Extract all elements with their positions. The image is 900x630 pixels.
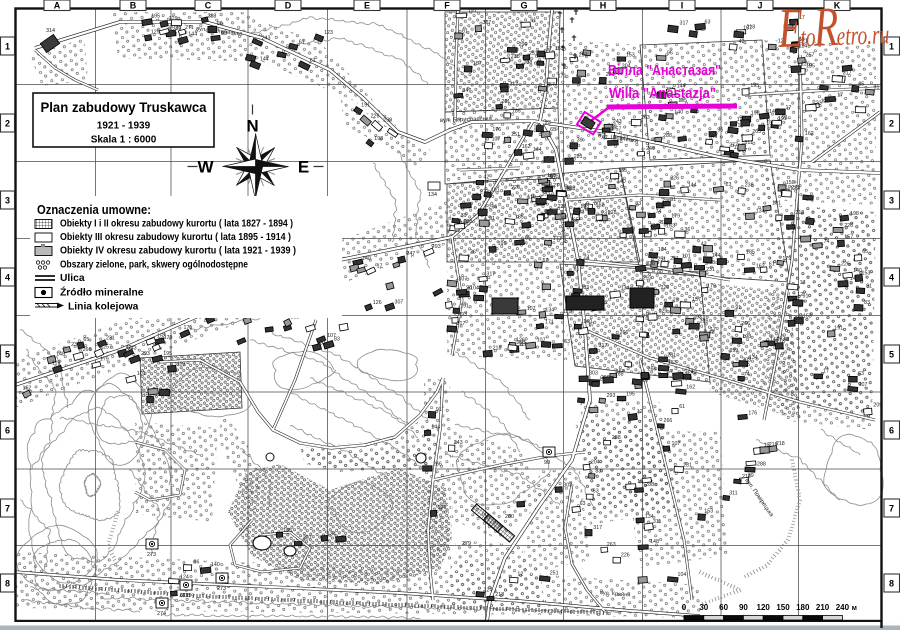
- svg-text:39: 39: [577, 137, 583, 143]
- svg-text:61: 61: [462, 29, 468, 35]
- svg-text:317: 317: [599, 343, 608, 349]
- svg-text:Ulica: Ulica: [60, 273, 85, 284]
- svg-text:83: 83: [595, 469, 601, 475]
- svg-text:198: 198: [374, 136, 383, 142]
- svg-text:134: 134: [621, 286, 630, 292]
- svg-text:96: 96: [717, 127, 723, 133]
- svg-text:129: 129: [169, 16, 178, 22]
- svg-text:198: 198: [742, 334, 751, 340]
- svg-text:307: 307: [303, 536, 312, 542]
- svg-text:266: 266: [626, 227, 635, 233]
- svg-text:61: 61: [574, 267, 580, 273]
- svg-text:Plan zabudowy Truskawca: Plan zabudowy Truskawca: [41, 100, 207, 115]
- svg-text:226: 226: [621, 552, 630, 558]
- svg-text:273: 273: [217, 586, 226, 592]
- svg-text:107: 107: [672, 441, 681, 447]
- svg-text:148: 148: [56, 351, 65, 357]
- svg-text:231: 231: [706, 267, 715, 273]
- svg-text:4: 4: [5, 273, 10, 283]
- svg-text:281: 281: [667, 353, 676, 359]
- svg-text:3: 3: [889, 196, 894, 206]
- svg-text:293: 293: [432, 244, 441, 250]
- svg-text:226: 226: [661, 285, 670, 291]
- svg-text:238: 238: [511, 54, 520, 60]
- svg-text:279: 279: [462, 541, 471, 547]
- svg-text:317: 317: [843, 70, 852, 76]
- svg-text:293: 293: [607, 393, 616, 399]
- svg-text:91: 91: [735, 305, 741, 311]
- svg-text:129: 129: [790, 186, 799, 192]
- svg-text:195: 195: [151, 14, 160, 20]
- svg-text:23: 23: [545, 120, 551, 126]
- svg-text:129: 129: [151, 29, 160, 35]
- svg-text:266: 266: [648, 367, 657, 373]
- svg-text:83: 83: [864, 300, 870, 306]
- svg-text:119: 119: [52, 361, 60, 367]
- svg-text:266: 266: [662, 197, 671, 203]
- svg-text:Źródło mineralne: Źródło mineralne: [60, 286, 144, 299]
- svg-text:293: 293: [169, 26, 178, 32]
- svg-text:277: 277: [729, 143, 738, 149]
- svg-text:61: 61: [310, 58, 316, 64]
- svg-text:83: 83: [635, 201, 641, 207]
- svg-text:126: 126: [700, 319, 709, 325]
- svg-text:17: 17: [786, 105, 792, 111]
- svg-text:288: 288: [208, 14, 217, 20]
- svg-text:311: 311: [653, 519, 661, 525]
- svg-text:226: 226: [511, 185, 520, 191]
- svg-text:299: 299: [438, 505, 447, 511]
- svg-text:Obszary zielone, park, skwery: Obszary zielone, park, skwery ogólnodost…: [60, 260, 248, 271]
- svg-text:307: 307: [395, 300, 404, 306]
- svg-text:179: 179: [671, 213, 680, 219]
- svg-text:212: 212: [509, 82, 518, 88]
- svg-text:238: 238: [71, 342, 80, 348]
- svg-text:240: 240: [836, 603, 850, 612]
- svg-text:104: 104: [678, 572, 687, 578]
- svg-text:63: 63: [580, 501, 586, 507]
- svg-text:107: 107: [154, 339, 163, 345]
- svg-text:Obiekty I i II okresu zabudowy: Obiekty I i II okresu zabudowy kurortu (…: [60, 219, 293, 230]
- svg-text:123: 123: [324, 30, 333, 36]
- svg-text:176: 176: [748, 411, 757, 417]
- svg-text:J: J: [757, 1, 762, 11]
- svg-text:63: 63: [705, 19, 711, 25]
- svg-text:36: 36: [684, 227, 690, 233]
- svg-text:293: 293: [141, 351, 150, 357]
- svg-text:218: 218: [769, 442, 778, 448]
- svg-text:83: 83: [583, 285, 589, 291]
- svg-text:191: 191: [361, 102, 370, 108]
- svg-text:12: 12: [517, 572, 523, 578]
- svg-text:134: 134: [327, 532, 336, 538]
- svg-text:153: 153: [862, 271, 871, 277]
- svg-text:157: 157: [692, 297, 701, 303]
- svg-text:195: 195: [163, 351, 172, 357]
- svg-text:107: 107: [527, 306, 536, 312]
- svg-text:Willa "Anastazja": Willa "Anastazja": [609, 85, 716, 102]
- svg-text:231: 231: [106, 336, 115, 342]
- svg-text:299: 299: [729, 348, 738, 354]
- svg-text:107: 107: [492, 137, 501, 143]
- svg-text:30: 30: [699, 603, 708, 612]
- svg-text:74: 74: [744, 372, 750, 378]
- svg-text:157: 157: [844, 235, 853, 241]
- svg-text:226: 226: [670, 175, 679, 181]
- svg-text:311: 311: [744, 140, 752, 146]
- svg-text:266: 266: [664, 418, 673, 424]
- svg-text:195: 195: [626, 391, 635, 397]
- svg-text:299: 299: [383, 118, 392, 124]
- svg-text:153: 153: [668, 360, 677, 366]
- svg-text:179: 179: [782, 256, 791, 262]
- svg-text:23: 23: [726, 182, 732, 188]
- svg-text:90: 90: [544, 460, 550, 466]
- svg-text:96: 96: [544, 210, 550, 216]
- svg-text:124: 124: [484, 587, 493, 593]
- svg-text:96: 96: [217, 21, 223, 27]
- svg-text:91: 91: [489, 216, 495, 222]
- svg-text:273: 273: [147, 552, 156, 558]
- svg-text:H: H: [600, 1, 607, 11]
- svg-text:107: 107: [859, 382, 868, 388]
- svg-text:61: 61: [679, 404, 685, 410]
- svg-text:162: 162: [805, 131, 814, 137]
- svg-text:198: 198: [850, 211, 859, 217]
- svg-text:168: 168: [615, 371, 624, 377]
- svg-text:Obiekty IV okresu zabudowy kur: Obiekty IV okresu zabudowy kurortu ( lat…: [60, 246, 296, 257]
- svg-text:17: 17: [377, 264, 383, 270]
- svg-text:204: 204: [591, 459, 600, 465]
- svg-text:A: A: [54, 1, 61, 11]
- svg-text:218: 218: [495, 592, 504, 598]
- svg-text:157: 157: [473, 61, 482, 67]
- svg-text:42: 42: [739, 39, 745, 45]
- svg-text:м: м: [852, 605, 857, 612]
- svg-text:134: 134: [545, 308, 554, 314]
- svg-text:247: 247: [462, 88, 471, 94]
- svg-text:8: 8: [5, 579, 10, 589]
- svg-text:251: 251: [529, 51, 538, 57]
- svg-text:63: 63: [593, 489, 599, 495]
- svg-text:307: 307: [458, 276, 467, 282]
- svg-text:101: 101: [682, 254, 691, 260]
- svg-text:96: 96: [566, 186, 572, 192]
- svg-text:Вілла "Анастазая": Вілла "Анастазая": [608, 62, 721, 79]
- svg-text:162: 162: [686, 384, 695, 390]
- svg-text:2: 2: [889, 119, 894, 129]
- svg-text:277: 277: [480, 190, 489, 196]
- svg-text:288: 288: [663, 133, 672, 139]
- svg-text:171: 171: [184, 325, 193, 331]
- svg-text:277: 277: [553, 183, 562, 189]
- svg-text:238: 238: [646, 261, 655, 267]
- svg-text:0: 0: [682, 603, 687, 612]
- svg-text:E: E: [298, 158, 309, 177]
- svg-text:263: 263: [607, 542, 616, 548]
- svg-text:61: 61: [769, 261, 775, 267]
- svg-text:144: 144: [431, 425, 440, 431]
- svg-text:Skala 1 : 6000: Skala 1 : 6000: [91, 135, 157, 146]
- svg-text:288: 288: [757, 462, 766, 468]
- svg-text:243: 243: [454, 440, 463, 446]
- svg-text:266: 266: [433, 462, 442, 468]
- svg-text:307: 307: [482, 20, 491, 26]
- svg-text:144: 144: [712, 253, 721, 259]
- svg-text:212: 212: [795, 210, 804, 216]
- svg-text:126: 126: [801, 61, 810, 67]
- svg-text:288: 288: [464, 219, 473, 225]
- svg-text:57: 57: [616, 127, 622, 133]
- svg-text:162: 162: [23, 385, 32, 391]
- svg-text:B: B: [130, 1, 137, 11]
- svg-text:153: 153: [666, 224, 675, 230]
- svg-text:65: 65: [83, 337, 89, 343]
- svg-text:226: 226: [844, 223, 853, 229]
- svg-text:91: 91: [866, 283, 872, 289]
- svg-text:148: 148: [650, 539, 659, 545]
- svg-text:96: 96: [194, 559, 200, 565]
- svg-text:107: 107: [743, 26, 752, 32]
- svg-text:83: 83: [334, 336, 340, 342]
- svg-text:231: 231: [601, 211, 610, 217]
- svg-text:317: 317: [680, 21, 689, 27]
- svg-text:185: 185: [547, 173, 556, 179]
- svg-text:6: 6: [5, 426, 10, 436]
- svg-text:57: 57: [546, 47, 552, 53]
- svg-text:179: 179: [707, 284, 716, 290]
- svg-text:185: 185: [618, 168, 627, 174]
- svg-text:124: 124: [685, 369, 694, 375]
- svg-text:171: 171: [558, 73, 567, 79]
- svg-text:176: 176: [492, 127, 501, 133]
- svg-text:171: 171: [545, 320, 554, 326]
- svg-text:63: 63: [564, 339, 570, 345]
- svg-text:74: 74: [656, 209, 662, 215]
- svg-text:140: 140: [583, 319, 592, 325]
- svg-text:317: 317: [457, 321, 466, 327]
- svg-text:G: G: [520, 1, 527, 11]
- svg-text:42: 42: [483, 175, 489, 181]
- svg-text:171: 171: [553, 236, 562, 242]
- svg-text:65: 65: [858, 82, 864, 88]
- svg-text:74: 74: [397, 257, 403, 263]
- svg-text:23: 23: [673, 297, 679, 303]
- svg-text:144: 144: [533, 147, 542, 153]
- svg-text:4: 4: [889, 273, 894, 283]
- svg-text:140: 140: [674, 110, 683, 116]
- svg-text:140: 140: [853, 268, 862, 274]
- svg-text:91: 91: [436, 407, 442, 413]
- svg-text:C: C: [205, 1, 212, 11]
- svg-text:247: 247: [406, 251, 415, 257]
- svg-text:280: 280: [505, 514, 514, 520]
- svg-text:119: 119: [527, 195, 535, 201]
- svg-text:1: 1: [5, 42, 10, 52]
- svg-text:Linia kolejowa: Linia kolejowa: [68, 302, 139, 313]
- svg-text:7: 7: [889, 504, 894, 514]
- svg-text:208: 208: [181, 593, 190, 599]
- svg-text:266: 266: [741, 321, 750, 327]
- svg-text:191: 191: [460, 304, 469, 310]
- svg-text:266: 266: [620, 330, 629, 336]
- svg-text:1921 - 1939: 1921 - 1939: [97, 121, 151, 132]
- svg-text:251: 251: [550, 571, 559, 577]
- svg-text:231: 231: [683, 463, 692, 469]
- svg-text:60: 60: [719, 603, 728, 612]
- svg-text:96: 96: [667, 50, 673, 56]
- svg-text:101: 101: [137, 371, 146, 377]
- svg-text:281: 281: [501, 99, 510, 105]
- svg-text:288: 288: [645, 482, 654, 488]
- svg-text:5: 5: [5, 350, 10, 360]
- svg-text:179: 179: [100, 357, 109, 363]
- svg-text:162: 162: [596, 203, 605, 209]
- svg-text:63: 63: [858, 371, 864, 377]
- svg-text:65: 65: [573, 218, 579, 224]
- svg-text:303: 303: [589, 371, 598, 377]
- svg-text:198: 198: [751, 111, 760, 117]
- svg-text:140: 140: [617, 179, 626, 185]
- svg-text:17: 17: [823, 369, 829, 375]
- svg-text:N: N: [246, 117, 258, 136]
- svg-text:185: 185: [283, 528, 292, 534]
- svg-text:191: 191: [491, 188, 500, 194]
- svg-text:274: 274: [157, 611, 166, 617]
- svg-text:91: 91: [874, 85, 880, 91]
- svg-text:144: 144: [260, 56, 269, 62]
- svg-text:129: 129: [659, 308, 668, 314]
- svg-text:153: 153: [704, 508, 713, 514]
- svg-text:61: 61: [299, 40, 305, 46]
- svg-text:65: 65: [550, 127, 556, 133]
- svg-text:144: 144: [688, 183, 697, 189]
- svg-text:140: 140: [769, 109, 778, 115]
- svg-text:96: 96: [466, 285, 472, 291]
- svg-text:F: F: [444, 1, 450, 11]
- svg-text:134: 134: [428, 192, 437, 198]
- svg-text:126: 126: [373, 300, 382, 306]
- svg-text:144: 144: [188, 32, 197, 38]
- svg-text:134: 134: [658, 247, 667, 253]
- svg-text:185: 185: [746, 250, 755, 256]
- svg-text:257: 257: [546, 82, 555, 88]
- svg-text:314: 314: [46, 28, 55, 34]
- svg-text:74: 74: [824, 239, 830, 245]
- svg-text:226: 226: [371, 114, 380, 120]
- svg-text:D: D: [285, 1, 292, 11]
- svg-text:238: 238: [524, 60, 533, 66]
- svg-text:144: 144: [770, 337, 779, 343]
- svg-text:120: 120: [757, 603, 771, 612]
- svg-text:90: 90: [739, 603, 748, 612]
- svg-text:303: 303: [563, 483, 572, 489]
- svg-text:263: 263: [641, 115, 650, 121]
- svg-text:218: 218: [493, 346, 502, 352]
- svg-text:36: 36: [470, 249, 476, 255]
- svg-text:12: 12: [637, 409, 643, 415]
- svg-text:281: 281: [574, 154, 583, 160]
- svg-text:129: 129: [821, 98, 830, 104]
- svg-text:Oznaczenia umowne:: Oznaczenia umowne:: [37, 203, 151, 217]
- svg-text:317: 317: [486, 271, 495, 277]
- svg-text:91: 91: [803, 294, 809, 300]
- svg-text:185: 185: [512, 108, 521, 114]
- svg-text:153: 153: [626, 53, 635, 59]
- svg-text:5: 5: [889, 350, 894, 360]
- svg-text:42: 42: [709, 329, 715, 335]
- svg-text:243: 243: [262, 36, 271, 42]
- svg-text:180: 180: [796, 603, 810, 612]
- svg-text:266: 266: [489, 204, 498, 210]
- svg-text:293: 293: [579, 53, 588, 59]
- svg-text:185: 185: [515, 214, 524, 220]
- svg-text:162: 162: [522, 144, 531, 150]
- svg-text:238: 238: [745, 183, 754, 189]
- svg-text:134: 134: [749, 355, 758, 361]
- svg-text:243: 243: [128, 345, 137, 351]
- svg-text:61: 61: [530, 18, 536, 24]
- svg-text:17: 17: [800, 280, 806, 286]
- svg-text:65: 65: [862, 249, 868, 255]
- svg-text:311: 311: [729, 490, 737, 496]
- svg-text:317: 317: [650, 223, 659, 229]
- svg-text:293: 293: [643, 276, 652, 282]
- svg-text:Obiekty III okresu zabudowy ku: Obiekty III okresu zabudowy kurortu ( la…: [60, 232, 291, 243]
- svg-text:288: 288: [795, 316, 804, 322]
- svg-text:210: 210: [816, 603, 830, 612]
- svg-text:150: 150: [776, 603, 790, 612]
- svg-text:288: 288: [612, 435, 621, 441]
- svg-text:I: I: [681, 1, 684, 11]
- svg-text:153: 153: [803, 313, 812, 319]
- svg-text:226: 226: [841, 261, 850, 267]
- svg-text:195: 195: [498, 241, 507, 247]
- svg-text:191: 191: [772, 200, 781, 206]
- svg-text:107: 107: [537, 337, 546, 343]
- svg-text:271: 271: [185, 25, 194, 31]
- svg-text:293: 293: [517, 340, 526, 346]
- svg-text:251: 251: [511, 132, 520, 138]
- svg-text:247: 247: [646, 146, 655, 152]
- svg-text:195: 195: [750, 83, 759, 89]
- svg-text:140: 140: [211, 562, 220, 568]
- svg-text:57: 57: [543, 258, 549, 264]
- svg-text:91: 91: [782, 115, 788, 121]
- svg-text:23: 23: [583, 254, 589, 260]
- svg-text:3: 3: [5, 196, 10, 206]
- svg-text:17: 17: [837, 93, 843, 99]
- svg-text:39: 39: [461, 213, 467, 219]
- svg-text:299: 299: [519, 42, 528, 48]
- svg-text:140: 140: [362, 256, 371, 262]
- svg-text:E: E: [364, 1, 370, 11]
- svg-text:119: 119: [177, 362, 185, 368]
- svg-text:317: 317: [593, 525, 602, 531]
- svg-text:W: W: [197, 158, 214, 177]
- svg-text:2: 2: [5, 119, 10, 129]
- svg-text:65: 65: [525, 236, 531, 242]
- svg-text:257: 257: [103, 345, 112, 351]
- svg-text:8: 8: [889, 579, 894, 589]
- svg-text:6: 6: [889, 426, 894, 436]
- svg-text:23: 23: [816, 100, 822, 106]
- svg-text:257: 257: [806, 53, 815, 59]
- svg-text:191: 191: [834, 326, 843, 332]
- svg-text:7: 7: [5, 504, 10, 514]
